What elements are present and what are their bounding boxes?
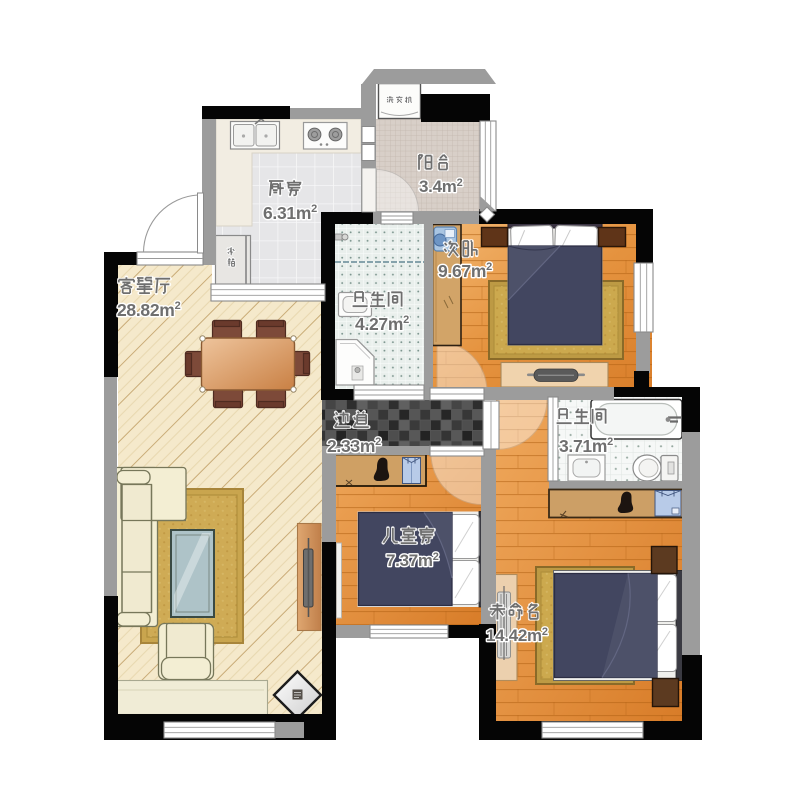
svg-text:7.37m2: 7.37m2 (386, 551, 439, 570)
svg-text:2.33m2: 2.33m2 (327, 436, 381, 456)
svg-text:28.82m2: 28.82m2 (117, 300, 181, 320)
svg-text:9.67m2: 9.67m2 (438, 261, 492, 281)
svg-text:6.31m2: 6.31m2 (263, 203, 317, 223)
svg-text:3.4m2: 3.4m2 (419, 177, 463, 196)
svg-text:3.71m2: 3.71m2 (559, 436, 613, 456)
svg-text:4.27m2: 4.27m2 (355, 314, 409, 334)
svg-text:14.42m2: 14.42m2 (486, 626, 548, 645)
